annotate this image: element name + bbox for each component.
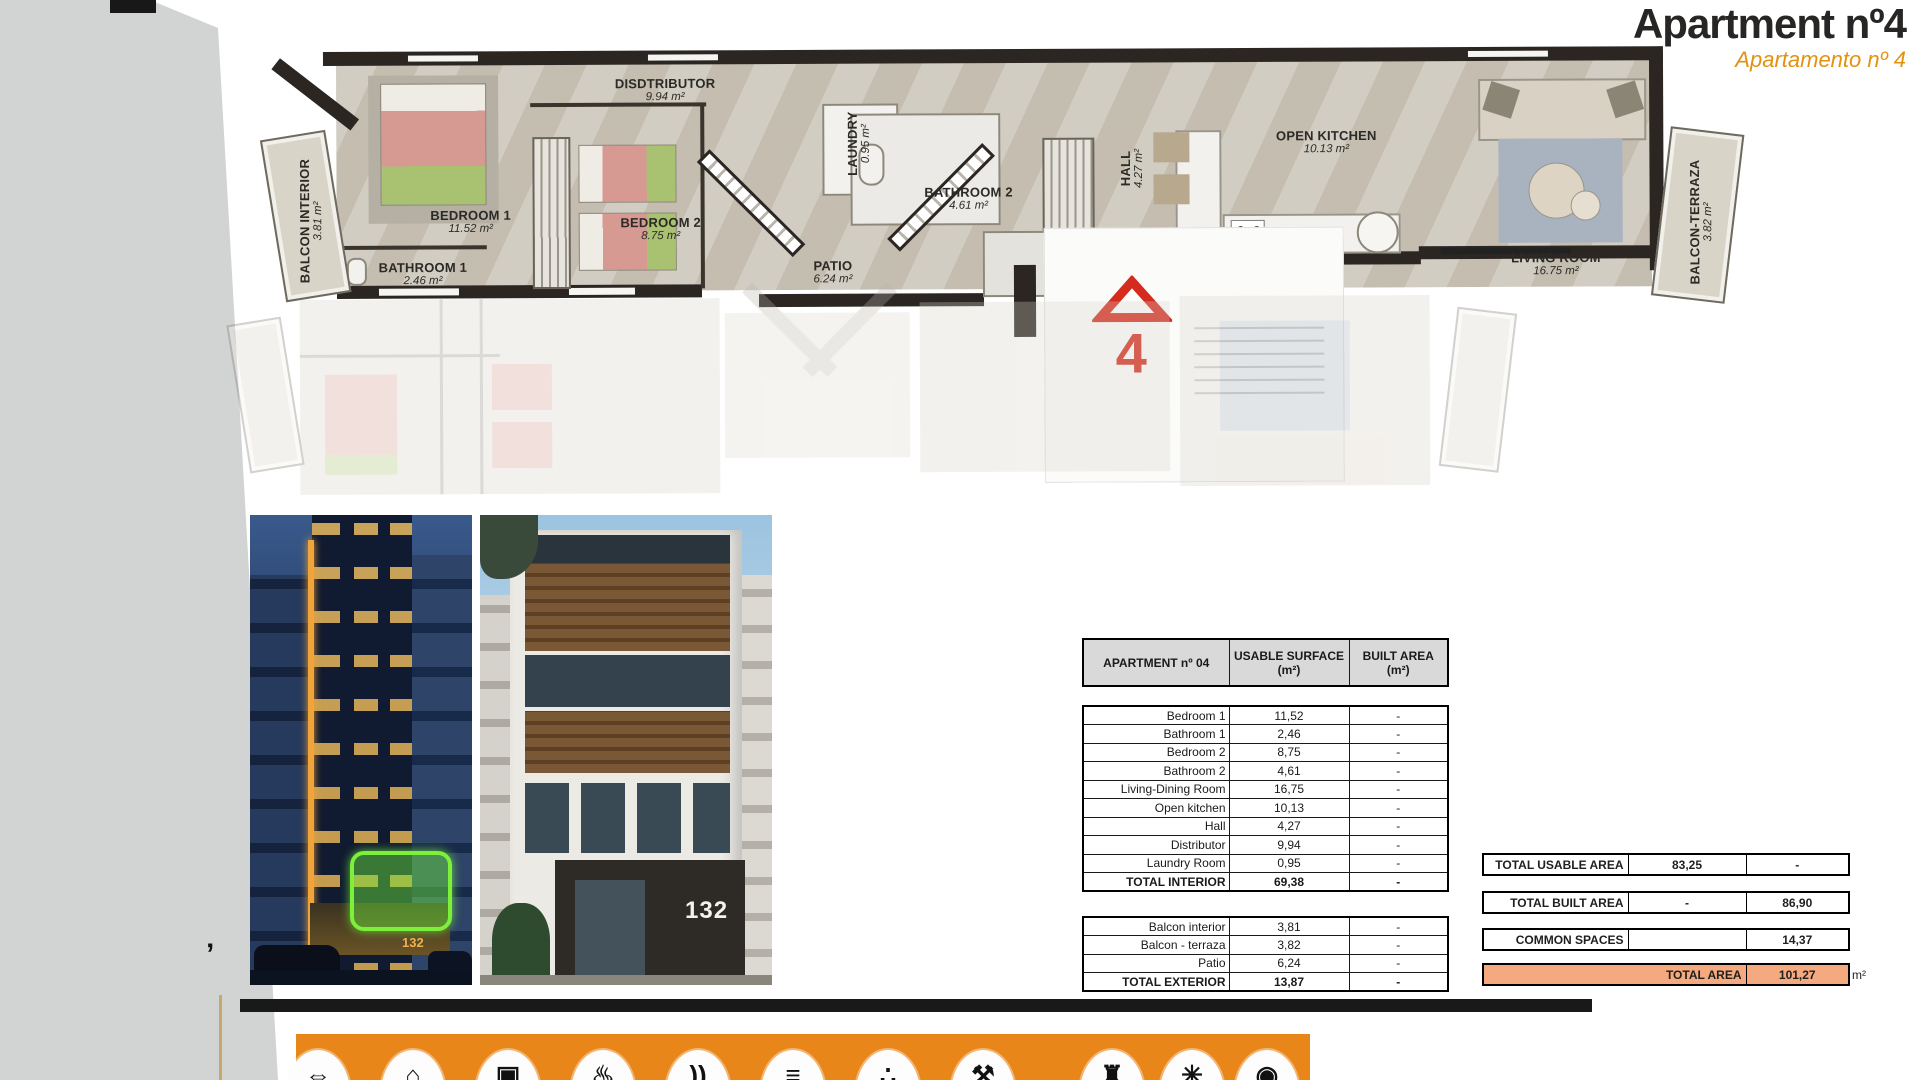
table-row: Open kitchen10,13- — [1083, 799, 1448, 818]
kitchen-canister — [1357, 211, 1399, 253]
kitchen-chair-1 — [1153, 132, 1189, 162]
room-label-patio: PATIO 6.24 m² — [813, 258, 852, 285]
interior-areas-table: Bedroom 111,52- Bathroom 12,46- Bedroom … — [1082, 705, 1449, 892]
coffee-table-small — [1571, 190, 1601, 220]
table-row: Laundry Room0,95- — [1083, 854, 1448, 873]
room-label-bathroom-2: BATHROOM 2 4.61 m² — [924, 185, 1013, 212]
table-row: Bathroom 24,61- — [1083, 762, 1448, 781]
window — [648, 54, 718, 60]
unit-highlight-frame — [350, 851, 452, 931]
room-label-balcon-terraza: BALCON-TERRAZA 3.82 m² — [1687, 160, 1715, 285]
page-title: Apartment nº4 — [1146, 2, 1906, 46]
room-label-living-room: LIVING ROOM 16.75 m² — [1511, 250, 1601, 277]
total-area-unit: m² — [1852, 968, 1866, 982]
wall-bathroom1-top — [337, 245, 487, 250]
total-built-area-box: TOTAL BUILT AREA-86,90 — [1482, 891, 1850, 914]
window — [408, 55, 478, 61]
total-exterior-row: TOTAL EXTERIOR13,87- — [1083, 973, 1448, 992]
header-usable-surface: USABLE SURFACE(m²) — [1229, 639, 1349, 686]
window — [1468, 51, 1548, 57]
header-built-area: BUILT AREA(m²) — [1349, 639, 1448, 686]
room-label-distributor: DISDTRIBUTOR 9.94 m² — [615, 76, 716, 103]
photo-night-number: 132 — [402, 935, 424, 950]
room-label-hall: HALL 4.27 m² — [1118, 149, 1145, 188]
brochure-page: ’ Apartment nº4 Apartamento nº 4 — [0, 0, 1920, 1080]
divider-bar — [240, 999, 1592, 1012]
table-row: Distributor9,94- — [1083, 836, 1448, 855]
table-row: Living-Dining Room16,75- — [1083, 780, 1448, 799]
bedroom1-bed — [380, 83, 487, 205]
room-label-bathroom-1: BATHROOM 1 2.46 m² — [379, 260, 468, 287]
top-edge-mark — [110, 0, 156, 13]
exterior-areas-table: Balcon interior3,81- Balcon - terraza3,8… — [1082, 916, 1449, 992]
table-row: Bathroom 12,46- — [1083, 725, 1448, 744]
total-interior-row: TOTAL INTERIOR69,38- — [1083, 873, 1448, 892]
table-row: Bedroom 28,75- — [1083, 743, 1448, 762]
total-usable-area-box: TOTAL USABLE AREA83,25- — [1482, 853, 1850, 876]
kitchen-chair-2 — [1153, 174, 1189, 204]
table-row: Patio6,24- — [1083, 954, 1448, 973]
photo-building-day: 132 — [480, 515, 772, 985]
page-fold-line — [219, 995, 222, 1080]
bedroom2-bed-1 — [578, 144, 676, 202]
table-row: Bedroom 111,52- — [1083, 706, 1448, 725]
total-area-box: TOTAL AREA101,27 — [1482, 963, 1850, 986]
photo-building-night: 132 — [250, 515, 472, 985]
table-row: Hall4,27- — [1083, 817, 1448, 836]
room-label-bedroom-1: BEDROOM 1 11.52 m² — [430, 208, 511, 235]
table-row: Balcon - terraza3,82- — [1083, 936, 1448, 955]
ghost-floor-plan — [230, 289, 1711, 510]
room-label-open-kitchen: OPEN KITCHEN 10.13 m² — [1276, 128, 1377, 155]
common-spaces-box: COMMON SPACES14,37 — [1482, 928, 1850, 951]
photo-day-number: 132 — [685, 897, 728, 925]
room-label-laundry: LAUNDRY 0.95 m² — [845, 111, 872, 176]
wall-bedroom2-right — [700, 104, 705, 288]
area-table-header: APARTMENT nº 04 USABLE SURFACE(m²) BUILT… — [1082, 638, 1449, 687]
pen-mark: ’ — [206, 938, 214, 972]
room-label-bedroom-2: BEDROOM 2 8.75 m² — [620, 215, 701, 242]
wardrobe-bedroom1 — [532, 137, 571, 289]
table-row: Balcon interior3,81- — [1083, 917, 1448, 936]
header-apartment: APARTMENT nº 04 — [1083, 639, 1229, 686]
room-label-balcon-interior: BALCON INTERIOR 3.81 m² — [297, 159, 325, 283]
